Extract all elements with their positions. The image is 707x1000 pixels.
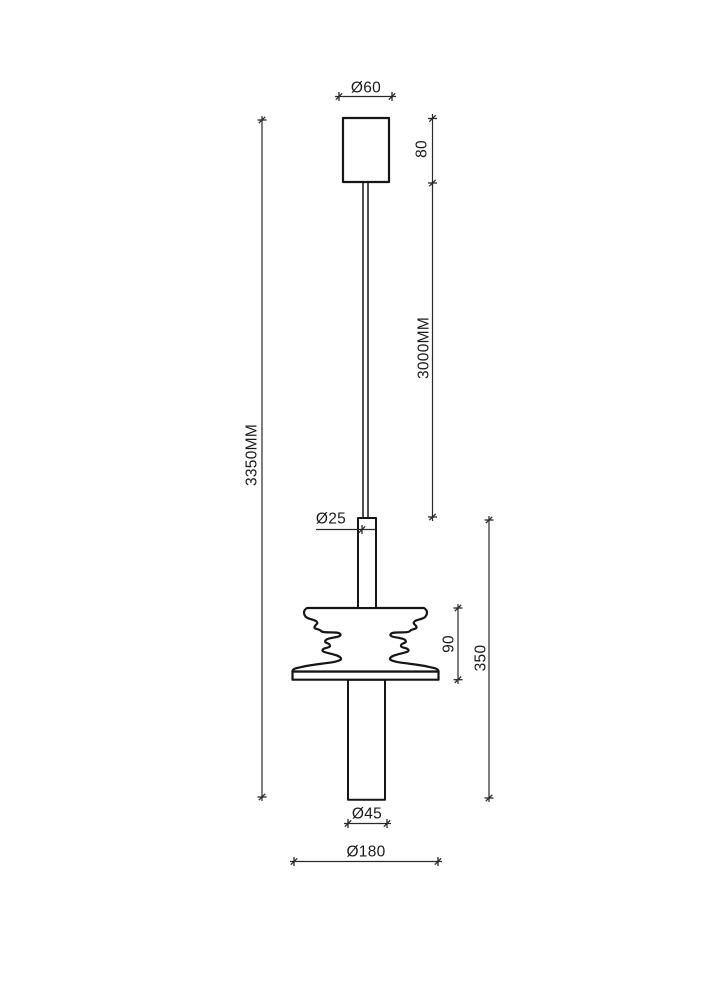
ceiling-canopy (343, 118, 389, 182)
suspension-cable (363, 182, 368, 518)
dim-label-shade-diameter: Ø180 (346, 844, 385, 860)
dim-label-stem-diameter: Ø25 (316, 511, 346, 527)
dim-label-overall-height: 3350MM (244, 424, 260, 486)
bottom-tube (348, 680, 385, 800)
dim-label-tube-diameter: Ø45 (352, 806, 382, 822)
dim-label-canopy-diameter: Ø60 (351, 80, 381, 96)
drawing-sheet: Ø60 80 3000MM 3350MM Ø25 90 350 Ø45 Ø180 (0, 0, 707, 1000)
base-disc (293, 672, 439, 680)
pendant-lamp-outline (293, 118, 439, 800)
dim-label-cord-length: 3000MM (416, 317, 432, 379)
dim-label-canopy-height: 80 (414, 140, 430, 158)
dim-label-shade-height: 90 (441, 635, 457, 653)
wavy-shade (293, 608, 439, 672)
dim-label-body-height: 350 (473, 645, 489, 672)
